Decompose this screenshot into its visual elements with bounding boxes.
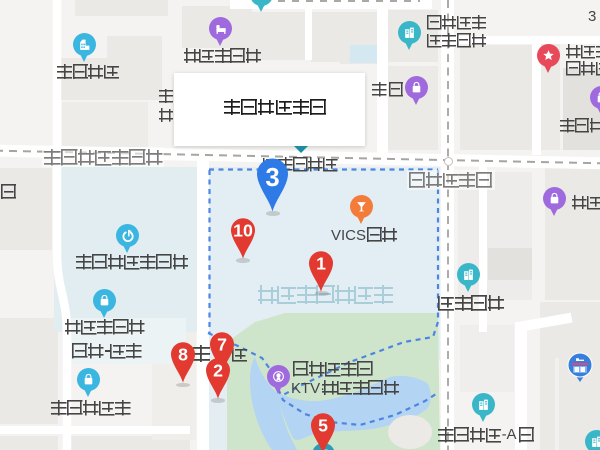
svg-text:3: 3 — [266, 164, 280, 192]
svg-text:8: 8 — [178, 345, 188, 365]
svg-text:1: 1 — [316, 253, 326, 273]
svg-text:2: 2 — [213, 360, 223, 380]
svg-text:10: 10 — [233, 220, 253, 240]
svg-text:7: 7 — [217, 334, 227, 354]
svg-text:5: 5 — [318, 416, 328, 436]
